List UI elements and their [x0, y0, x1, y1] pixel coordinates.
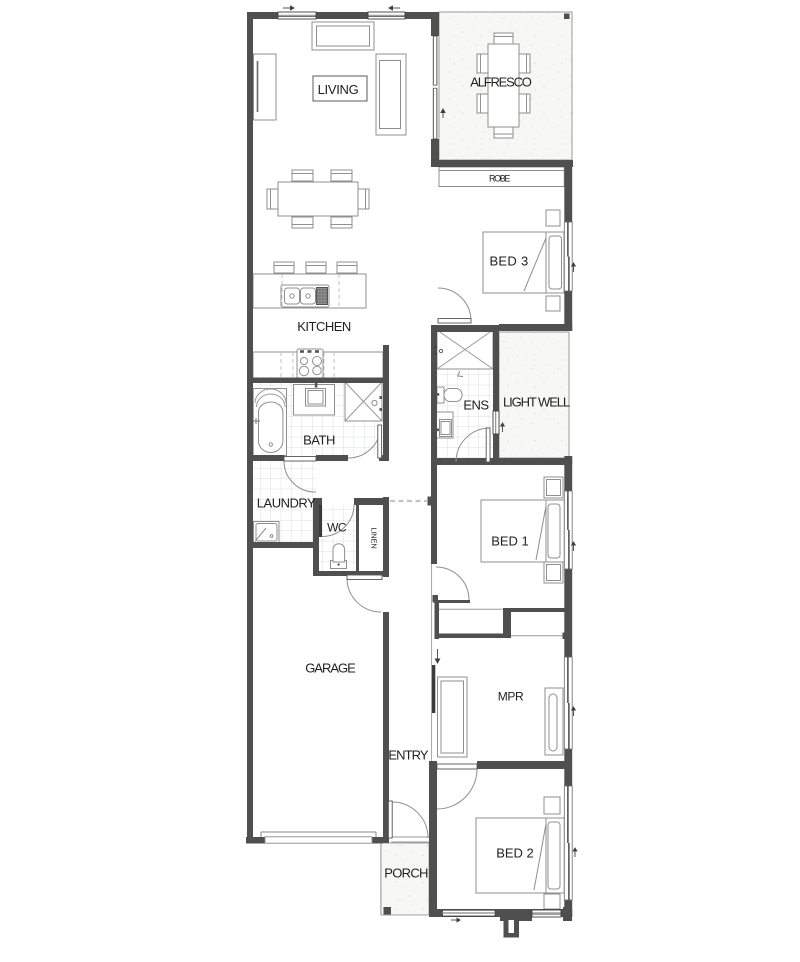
svg-text:BATH: BATH — [303, 433, 335, 448]
svg-text:LINEN: LINEN — [370, 527, 379, 548]
svg-text:GARAGE: GARAGE — [305, 661, 356, 676]
svg-text:ENTRY: ENTRY — [388, 748, 429, 763]
svg-text:BED 1: BED 1 — [491, 534, 529, 549]
svg-text:BED 3: BED 3 — [489, 254, 528, 269]
svg-text:LAUNDRY: LAUNDRY — [257, 496, 316, 511]
svg-text:ALFRESCO: ALFRESCO — [470, 75, 532, 90]
svg-text:KITCHEN: KITCHEN — [297, 319, 351, 334]
svg-text:MPR: MPR — [498, 690, 524, 704]
svg-text:BED 2: BED 2 — [496, 846, 534, 861]
svg-text:WC: WC — [327, 521, 347, 535]
svg-text:LIGHT WELL: LIGHT WELL — [503, 395, 570, 410]
svg-text:PORCH: PORCH — [384, 866, 428, 881]
svg-text:ENS: ENS — [463, 398, 489, 413]
svg-text:ROBE: ROBE — [489, 174, 510, 184]
svg-text:LIVING: LIVING — [318, 82, 359, 97]
